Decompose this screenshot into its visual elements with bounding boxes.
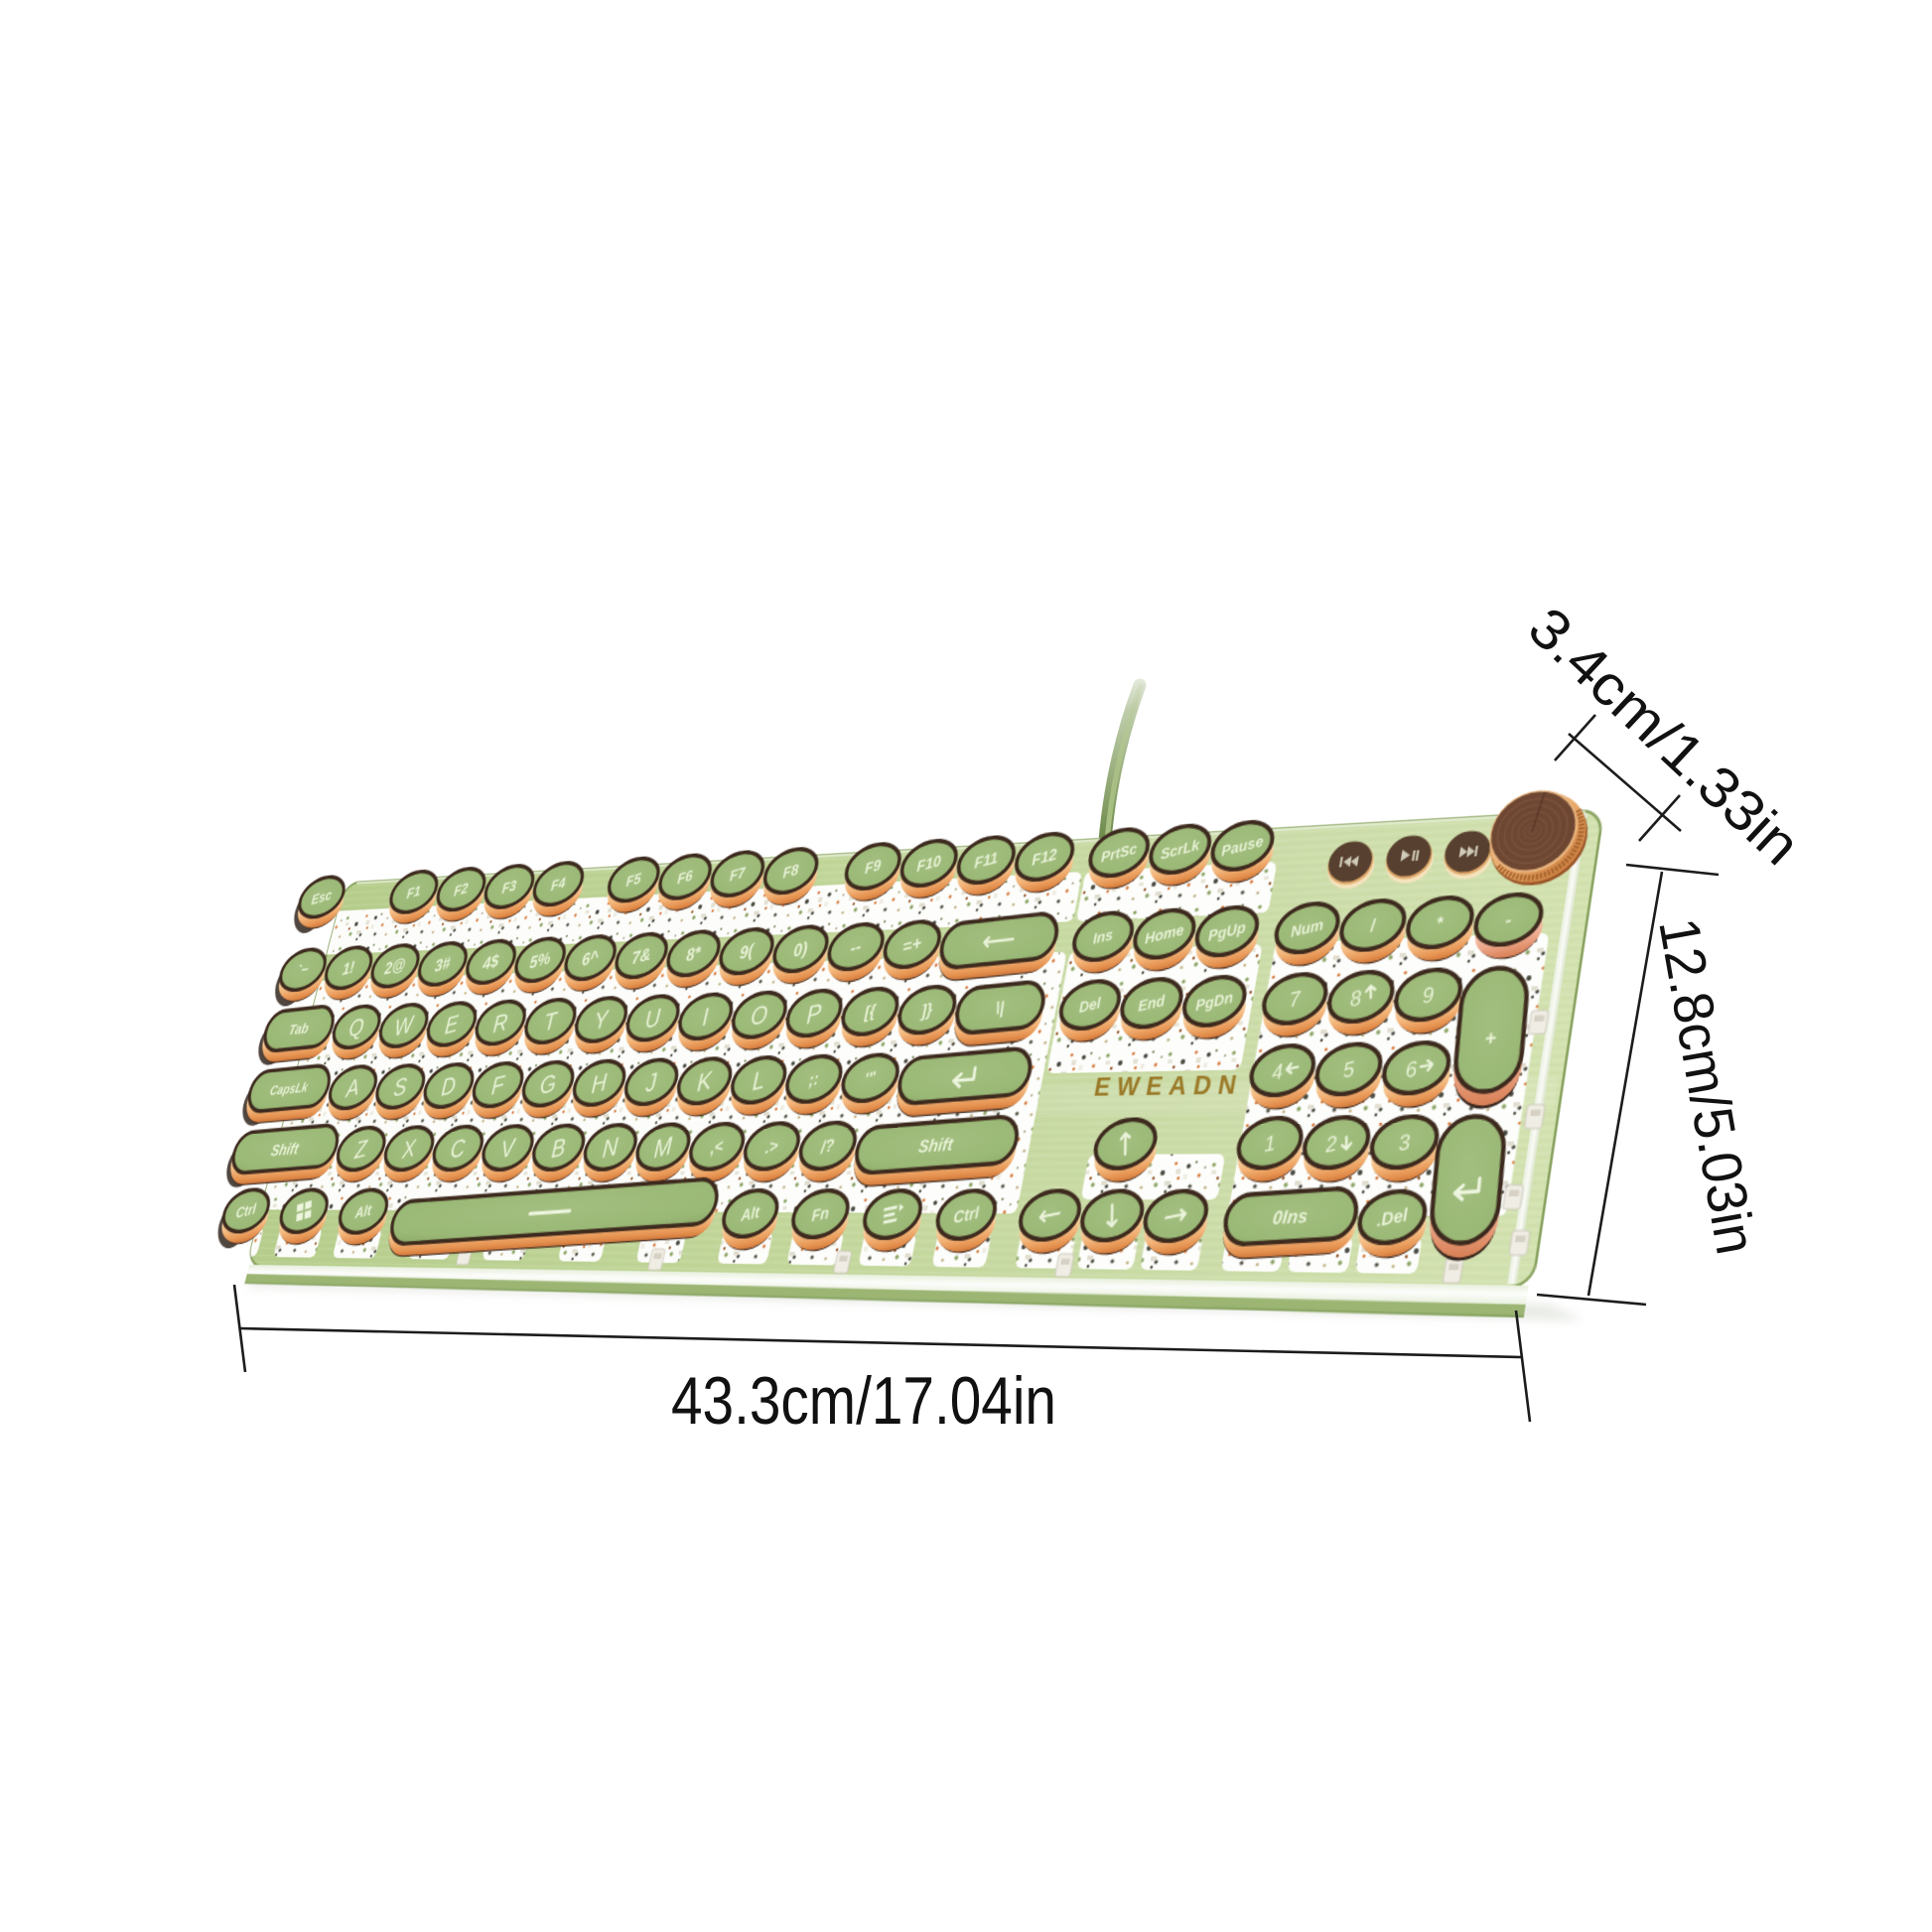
svg-text:12.8cm/5.03in: 12.8cm/5.03in <box>1646 913 1767 1259</box>
svg-text:43.3cm/17.04in: 43.3cm/17.04in <box>671 1363 1056 1439</box>
svg-text:3.4cm/1.33in: 3.4cm/1.33in <box>1516 596 1812 878</box>
